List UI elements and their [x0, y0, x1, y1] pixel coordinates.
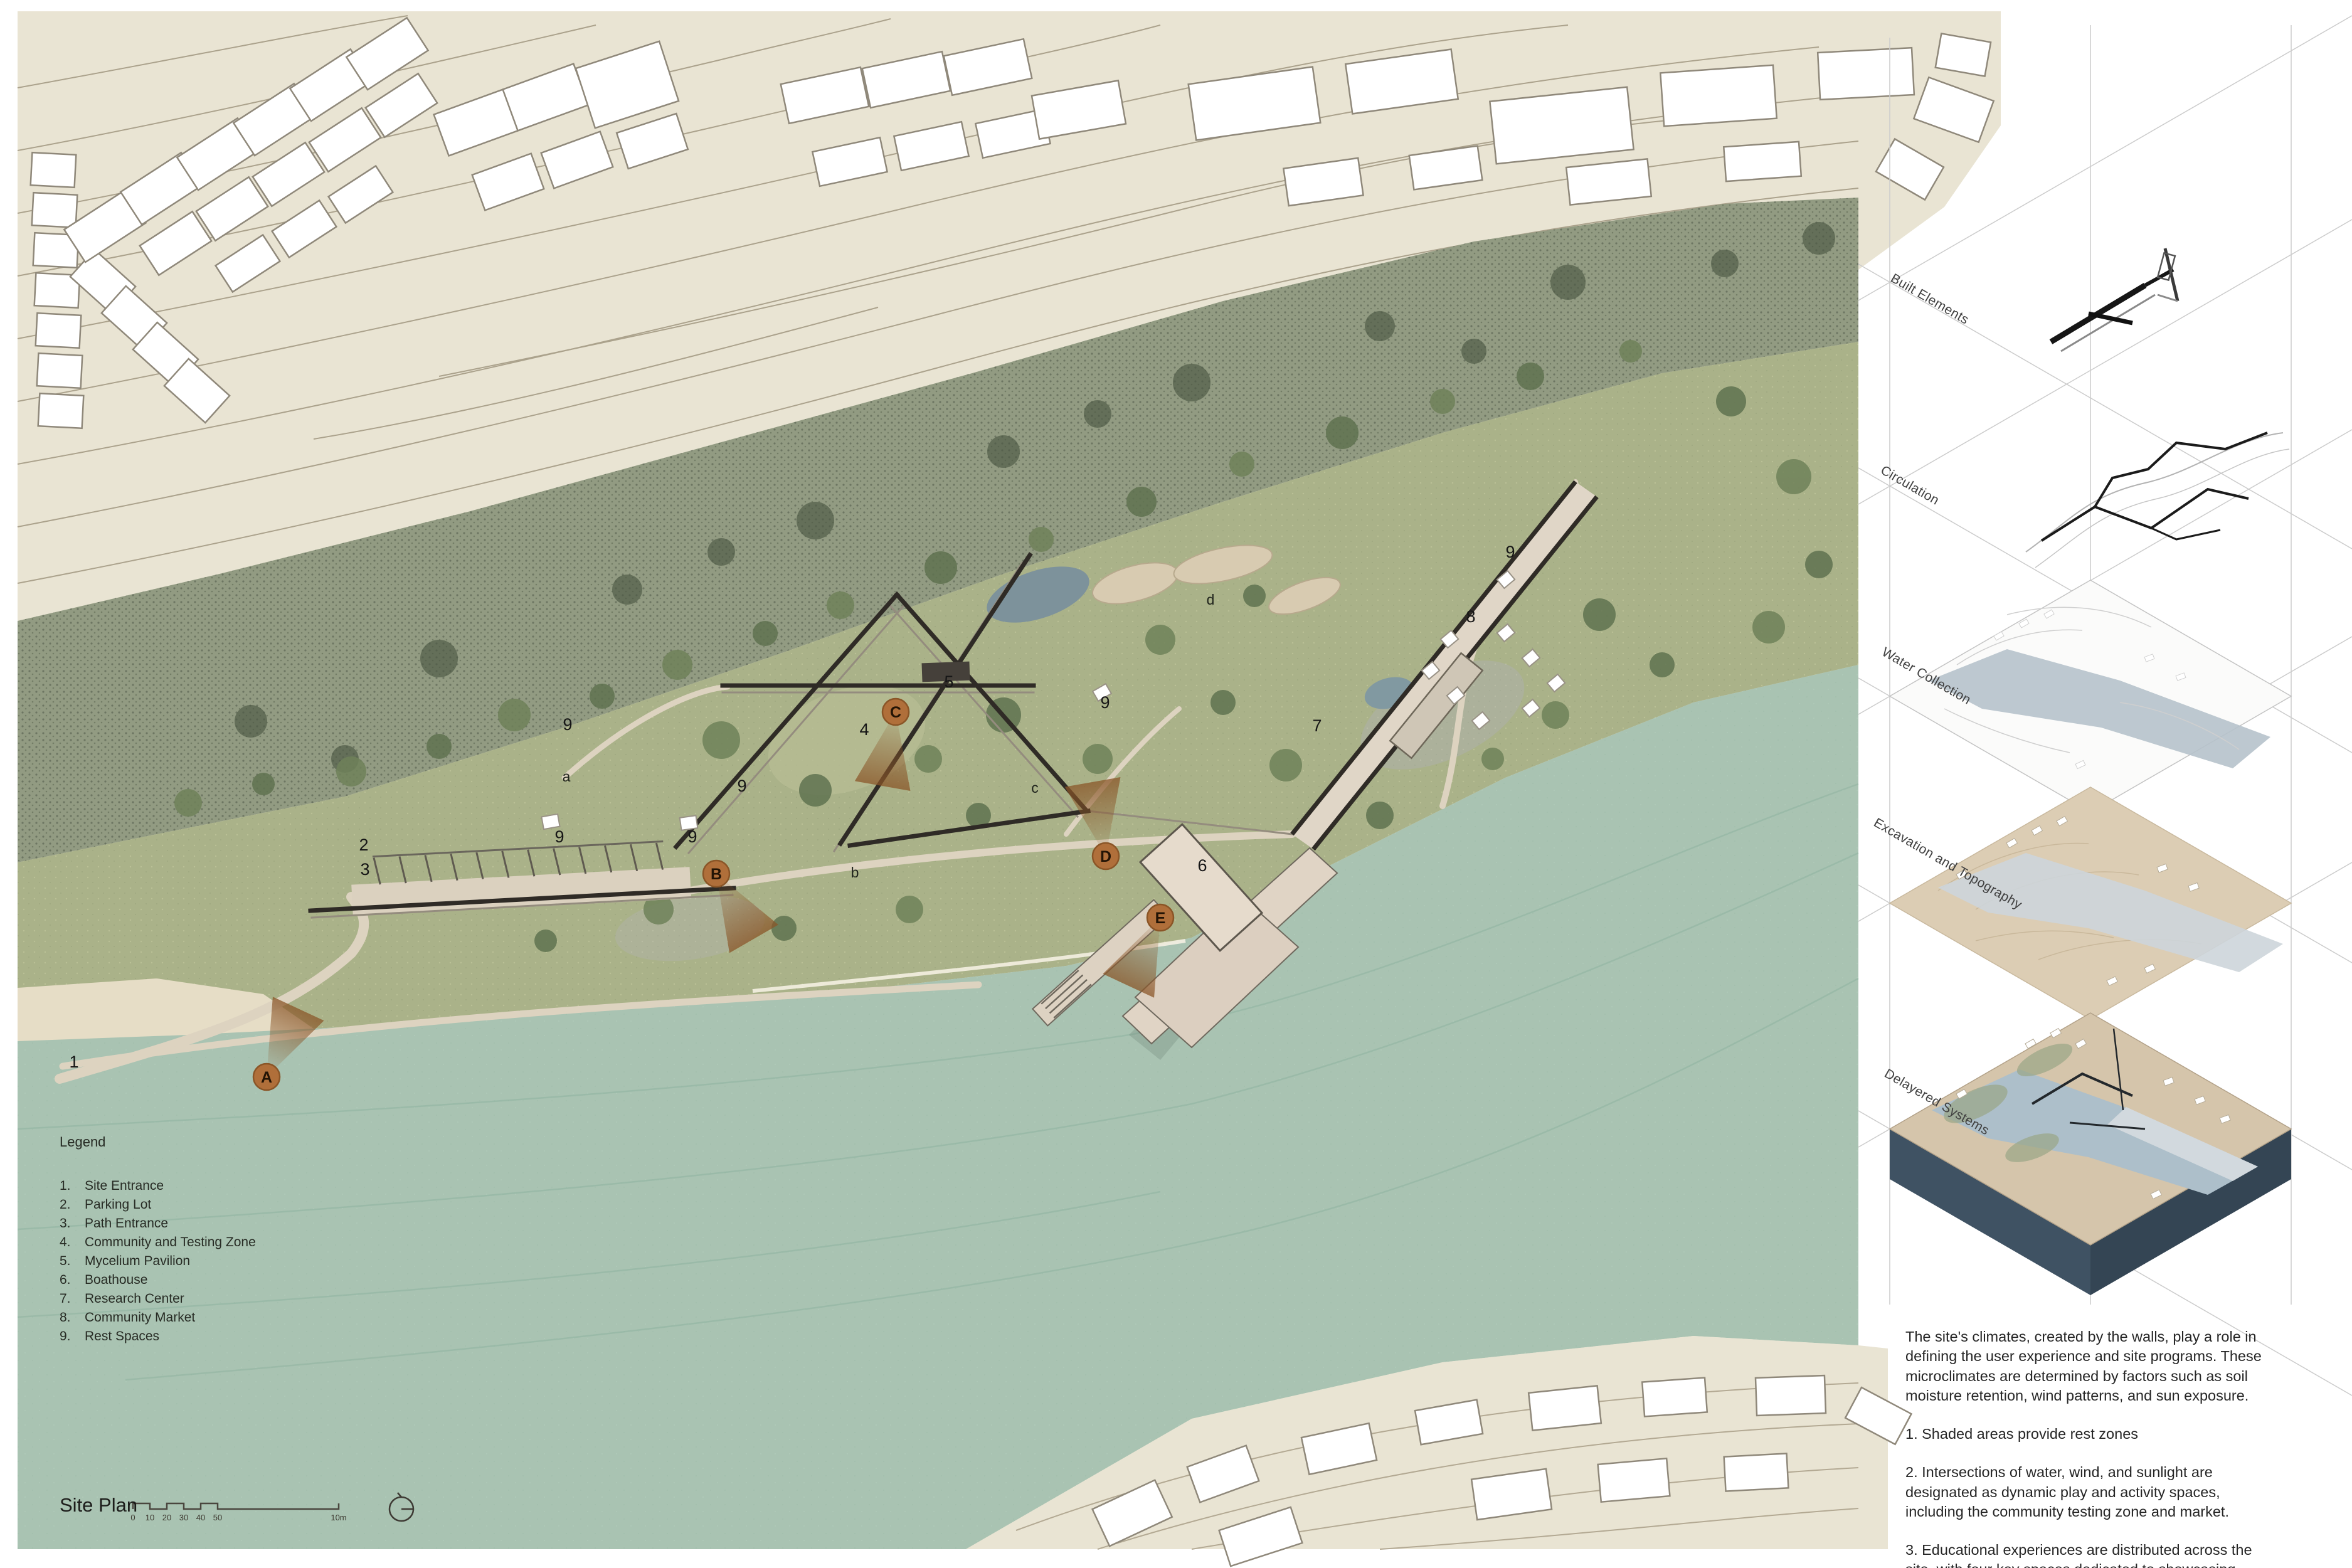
plan-marker: 9: [554, 827, 564, 846]
notes-item-1: 1. Shaded areas provide rest zones: [1905, 1424, 2275, 1444]
legend-item-label: Parking Lot: [85, 1197, 151, 1212]
plan-marker: 8: [1466, 607, 1475, 626]
legend-item: 4.Community and Testing Zone: [60, 1233, 256, 1252]
legend-title: Legend: [60, 1134, 256, 1150]
zone-marker-label: C: [890, 704, 901, 721]
plan-marker: 5: [944, 672, 953, 691]
notes-intro: The site's climates, created by the wall…: [1905, 1327, 2275, 1406]
legend: Legend 1.Site Entrance 2.Parking Lot 3.P…: [60, 1134, 256, 1346]
legend-item-num: 9.: [60, 1327, 85, 1346]
zone-marker-label: B: [711, 866, 722, 883]
legend-item-label: Research Center: [85, 1291, 184, 1306]
scale-tick: 10: [146, 1513, 154, 1522]
plan-marker: 9: [1100, 693, 1110, 712]
plan-marker: 9: [737, 776, 746, 795]
plan-marker: 2: [359, 835, 368, 854]
legend-item-num: 6.: [60, 1271, 85, 1290]
legend-item: 6.Boathouse: [60, 1271, 256, 1290]
plan-marker: c: [1031, 780, 1039, 796]
legend-item-label: Site Entrance: [85, 1179, 164, 1193]
scale-end-label: 10m: [331, 1513, 346, 1522]
plan-marker: 9: [687, 827, 697, 846]
zone-marker-label: E: [1155, 909, 1166, 927]
legend-item-label: Path Entrance: [85, 1216, 168, 1231]
scale-tick: 50: [213, 1513, 222, 1522]
diagram-excavation: [1890, 787, 2291, 1019]
presentation-board: A B C D E 1 2 3 9 9 9 a 9 4 5 9 c b 6 7 …: [0, 0, 2352, 1568]
legend-item-num: 2.: [60, 1195, 85, 1214]
scale-tick: 40: [196, 1513, 205, 1522]
plan-marker: a: [563, 768, 571, 785]
legend-item-label: Boathouse: [85, 1273, 147, 1287]
legend-item-label: Mycelium Pavilion: [85, 1254, 190, 1268]
legend-item: 8.Community Market: [60, 1308, 256, 1327]
legend-item-label: Rest Spaces: [85, 1329, 159, 1343]
site-plan-title: Site Plan: [60, 1494, 137, 1517]
notes-block: The site's climates, created by the wall…: [1905, 1327, 2275, 1568]
plan-marker: 3: [360, 860, 369, 879]
notes-item-3: 3. Educational experiences are distribut…: [1905, 1540, 2275, 1568]
legend-item-num: 4.: [60, 1233, 85, 1252]
plan-marker: b: [851, 864, 859, 881]
legend-item-label: Community and Testing Zone: [85, 1235, 256, 1249]
plan-marker: d: [1207, 591, 1215, 608]
diagram-built-elements: [2051, 248, 2178, 351]
legend-item-num: 7.: [60, 1290, 85, 1308]
zone-marker-label: D: [1100, 848, 1111, 866]
legend-item-label: Community Market: [85, 1310, 195, 1325]
legend-item-num: 5.: [60, 1252, 85, 1271]
scale-tick: 20: [162, 1513, 171, 1522]
legend-item: 9.Rest Spaces: [60, 1327, 256, 1346]
legend-item: 1.Site Entrance: [60, 1177, 256, 1195]
plan-marker: 6: [1197, 856, 1207, 875]
notes-item-2: 2. Intersections of water, wind, and sun…: [1905, 1463, 2275, 1522]
plan-marker: 4: [859, 720, 869, 739]
plan-marker: 7: [1312, 716, 1322, 735]
scale-tick: 30: [179, 1513, 188, 1522]
legend-item-num: 3.: [60, 1214, 85, 1233]
plan-marker: 9: [1505, 543, 1515, 561]
legend-item: 7.Research Center: [60, 1290, 256, 1308]
legend-item: 5.Mycelium Pavilion: [60, 1252, 256, 1271]
diagram-circulation: [2026, 433, 2289, 568]
legend-item-num: 1.: [60, 1177, 85, 1195]
legend-item-num: 8.: [60, 1308, 85, 1327]
legend-item: 3.Path Entrance: [60, 1214, 256, 1233]
legend-item: 2.Parking Lot: [60, 1195, 256, 1214]
zone-marker-label: A: [261, 1069, 272, 1086]
diagram-delayered-systems: [1890, 1013, 2291, 1295]
plan-marker: 1: [69, 1052, 78, 1071]
plan-marker: 9: [563, 715, 572, 734]
